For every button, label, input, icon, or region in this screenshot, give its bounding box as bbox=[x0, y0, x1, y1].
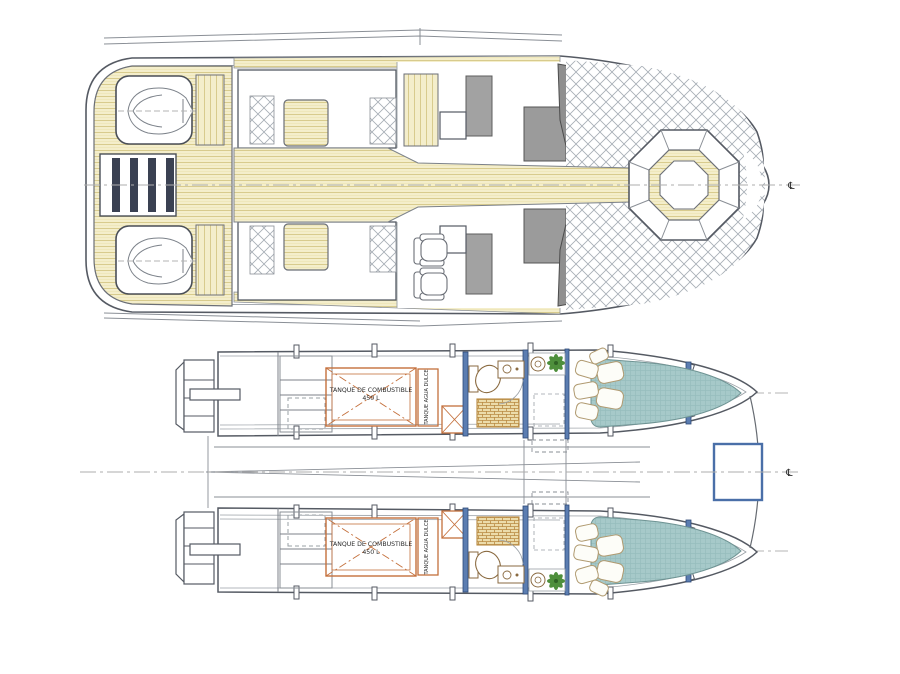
centerline-symbol: ℄ bbox=[787, 181, 795, 192]
shower-icon bbox=[477, 399, 519, 427]
lower-deck-plan: ℄ TANQUE DE COMBUSTIBLE 450 L TANQUE AGU… bbox=[80, 343, 798, 601]
boat-plan-canvas: ℄ bbox=[0, 0, 900, 674]
port-tender-bay bbox=[116, 76, 200, 144]
sink-icon bbox=[498, 361, 524, 378]
salon-table bbox=[440, 112, 466, 139]
galley-counter bbox=[404, 74, 438, 146]
starboard-hull bbox=[176, 504, 788, 601]
hatch-crosshatch bbox=[370, 98, 396, 144]
fuel-tank-capacity: 450 L bbox=[362, 549, 380, 556]
hatch-crosshatch bbox=[250, 226, 274, 274]
salon-seat bbox=[466, 234, 492, 294]
port-hull bbox=[176, 343, 788, 440]
plant-icon bbox=[547, 354, 565, 372]
fuel-tank-label: TANQUE DE COMBUSTIBLE bbox=[329, 541, 413, 548]
catamaran-plans-drawing: ℄ bbox=[0, 0, 900, 674]
fuel-tank-capacity: 450 L bbox=[362, 395, 380, 402]
davit-plank-strip bbox=[196, 75, 224, 145]
helm-seat bbox=[414, 268, 447, 300]
bulkhead bbox=[565, 349, 569, 439]
davit-plank-strip bbox=[196, 225, 224, 295]
bulkhead bbox=[463, 352, 468, 436]
main-deck-plan: ℄ bbox=[84, 28, 800, 326]
helm-seat bbox=[414, 234, 447, 266]
water-tank-label: TANQUE AGUA DULCE bbox=[424, 520, 430, 576]
deck-hatch bbox=[284, 224, 328, 270]
deck-hatch bbox=[284, 100, 328, 146]
fuel-tank-label: TANQUE DE COMBUSTIBLE bbox=[329, 387, 413, 394]
starboard-tender-bay bbox=[116, 226, 200, 294]
water-tank-label: TANQUE AGUA DULCE bbox=[424, 370, 430, 426]
centerline-symbol: ℄ bbox=[785, 468, 793, 479]
hatch-crosshatch bbox=[250, 96, 274, 144]
hatch-crosshatch bbox=[370, 226, 396, 272]
vent-symbol bbox=[531, 357, 545, 371]
coachroof-port bbox=[238, 70, 396, 148]
salon-seat bbox=[466, 76, 492, 136]
coachroof-starboard bbox=[238, 222, 396, 300]
